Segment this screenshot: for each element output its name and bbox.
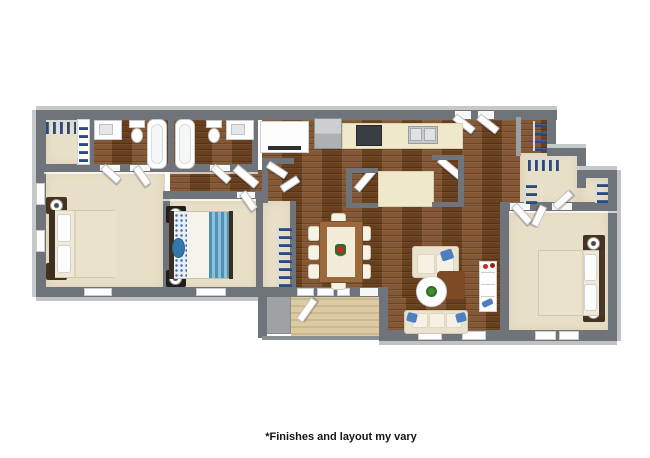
- bath1-toilet-tank: [129, 120, 145, 128]
- sofa-cushion-2: [429, 313, 445, 328]
- top-closet-clothes: [533, 121, 547, 151]
- bedroom1-pillow-2: [57, 245, 71, 273]
- bookshelf-red-item-2: [490, 263, 495, 268]
- nook-clothes: [595, 182, 608, 203]
- bedroom2-footboard: [229, 211, 233, 279]
- refrigerator: [314, 118, 342, 149]
- wall-balcony-left: [258, 287, 267, 338]
- disclaimer-text: *Finishes and layout my vary: [32, 431, 650, 443]
- loveseat-cushion-1: [417, 254, 435, 274]
- wall-right: [608, 203, 617, 341]
- window-balcony-1: [297, 288, 314, 296]
- pantry-right-wall-b: [432, 155, 464, 160]
- bedroom3-pillow-1: [584, 254, 597, 281]
- bedroom1-headboard: [49, 210, 55, 278]
- bookshelf-shelf-3: [481, 296, 495, 297]
- closet-tl-shelf-items: [79, 122, 88, 162]
- bath2-bathtub: [175, 119, 195, 169]
- bedroom3-lamp-1: [587, 237, 600, 250]
- pantry-left-wall-c: [346, 203, 378, 208]
- walkin-clothes-west: [524, 184, 537, 204]
- bedroom3-pillow-2: [584, 284, 597, 311]
- bedroom1-pillow-1: [57, 214, 71, 242]
- window-bedroom2: [196, 288, 226, 296]
- range-stove: [356, 125, 382, 146]
- pantry-right-wall-a: [458, 155, 464, 207]
- window-bedroom3-2: [559, 331, 579, 340]
- living-floor: [262, 205, 507, 297]
- wall-topcloset-left: [516, 117, 521, 156]
- white-cabinet-handle: [268, 146, 301, 150]
- window-left-2: [36, 230, 45, 252]
- bath2-vanity-sink: [226, 120, 254, 140]
- hall-closet-clothes: [277, 227, 292, 287]
- wall-bath1-bath2: [168, 110, 174, 168]
- island-counter: [378, 171, 434, 207]
- balcony-rail: [262, 336, 388, 340]
- potted-plant: [426, 286, 437, 297]
- bookshelf-red-item-1: [483, 264, 488, 269]
- door-gap-balcony: [360, 288, 378, 296]
- bath2-toilet-tank: [206, 120, 222, 128]
- pantry-left-wall-b: [346, 168, 378, 173]
- bedroom1-duvet: [74, 211, 116, 277]
- bath2-toilet-bowl: [208, 128, 220, 143]
- closet-tl-hanging-clothes: [46, 120, 76, 134]
- bedroom2-blue-ottoman: [172, 238, 185, 258]
- dining-centerpiece-flowers: [335, 244, 346, 258]
- bedroom3-duvet: [539, 251, 584, 315]
- window-bedroom1: [84, 288, 112, 296]
- pantry-left-wall-a: [346, 168, 352, 208]
- sink-basin-right: [424, 128, 436, 141]
- bath1-bathtub: [147, 119, 167, 169]
- wall-step-v2: [577, 148, 586, 188]
- bookshelf-shelf-1: [481, 272, 495, 273]
- bedroom3-headboard: [599, 250, 605, 316]
- window-bedroom3-1: [535, 331, 556, 340]
- bookshelf-shelf-2: [481, 284, 495, 285]
- bath1-toilet-bowl: [131, 128, 143, 143]
- pantry-right-wall-c: [432, 202, 464, 207]
- floor-plan-image: *Finishes and layout my vary: [0, 0, 650, 458]
- patio-tile: [265, 295, 291, 334]
- window-left-1: [36, 183, 45, 205]
- walkin-clothes-north: [528, 158, 562, 171]
- sink-basin-left: [410, 128, 422, 141]
- wall-bedroom3-left: [500, 202, 509, 330]
- wall-bottom-left: [36, 287, 267, 297]
- bath1-vanity-sink: [94, 120, 122, 140]
